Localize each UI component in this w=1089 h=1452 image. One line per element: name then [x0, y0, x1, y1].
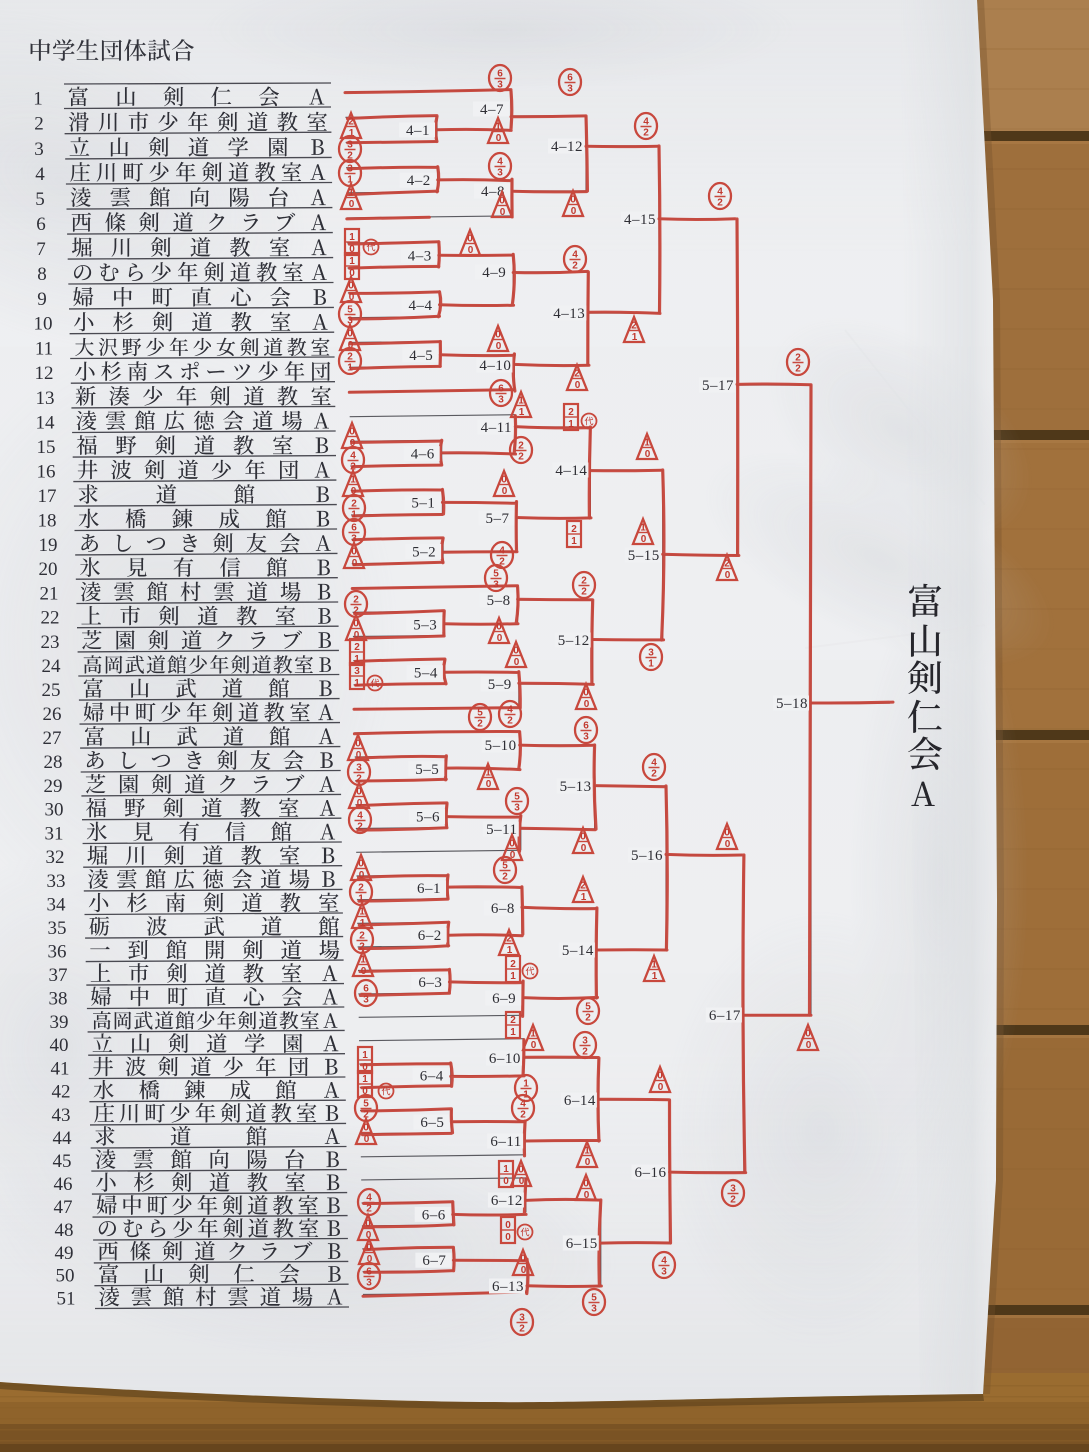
svg-text:0: 0 — [657, 1071, 663, 1082]
svg-text:0: 0 — [806, 1040, 812, 1051]
svg-text:4: 4 — [572, 250, 578, 261]
svg-text:0: 0 — [725, 839, 731, 850]
svg-text:38: 38 — [49, 989, 68, 1010]
svg-text:1: 1 — [362, 1074, 368, 1085]
svg-text:6: 6 — [497, 69, 503, 80]
svg-text:31: 31 — [45, 824, 64, 845]
svg-text:2: 2 — [724, 559, 730, 570]
svg-text:0: 0 — [496, 622, 502, 633]
svg-text:0: 0 — [366, 1243, 372, 1254]
svg-text:6: 6 — [36, 214, 46, 235]
svg-text:6–10: 6–10 — [489, 1051, 521, 1067]
svg-text:4–2: 4–2 — [407, 173, 431, 189]
svg-text:0: 0 — [353, 619, 359, 630]
svg-text:1: 1 — [33, 89, 43, 110]
svg-text:26: 26 — [43, 704, 62, 725]
svg-text:0: 0 — [521, 1265, 527, 1276]
svg-text:1: 1 — [350, 475, 356, 486]
svg-text:6: 6 — [363, 984, 369, 995]
svg-text:1: 1 — [349, 232, 355, 243]
svg-text:2: 2 — [510, 1015, 516, 1026]
svg-text:0: 0 — [502, 486, 508, 497]
svg-text:5–15: 5–15 — [628, 548, 660, 564]
svg-text:1: 1 — [349, 256, 355, 267]
svg-text:3: 3 — [582, 1036, 588, 1047]
svg-text:37: 37 — [49, 965, 68, 986]
svg-text:0: 0 — [495, 330, 501, 341]
svg-text:5–6: 5–6 — [416, 810, 440, 826]
svg-text:2: 2 — [518, 452, 524, 463]
svg-text:0: 0 — [486, 779, 492, 790]
svg-text:0: 0 — [349, 427, 355, 438]
svg-text:0: 0 — [645, 449, 651, 460]
svg-text:3: 3 — [519, 1313, 525, 1324]
svg-text:0: 0 — [348, 281, 354, 292]
svg-text:6–15: 6–15 — [566, 1236, 598, 1252]
svg-text:2: 2 — [353, 595, 359, 606]
svg-text:2: 2 — [574, 369, 580, 380]
svg-text:0: 0 — [580, 832, 586, 843]
svg-text:2: 2 — [358, 883, 364, 894]
svg-text:5–14: 5–14 — [562, 943, 594, 959]
svg-text:6–5: 6–5 — [420, 1115, 444, 1131]
svg-text:4: 4 — [499, 546, 505, 557]
svg-text:28: 28 — [44, 752, 63, 773]
svg-text:6–17: 6–17 — [709, 1008, 741, 1024]
svg-text:1: 1 — [507, 945, 513, 956]
svg-text:6–14: 6–14 — [564, 1093, 596, 1109]
svg-text:5–1: 5–1 — [411, 496, 435, 512]
svg-text:2: 2 — [506, 934, 512, 945]
svg-text:0: 0 — [349, 199, 355, 210]
svg-text:3: 3 — [514, 803, 520, 814]
svg-text:5: 5 — [585, 1002, 591, 1013]
svg-text:44: 44 — [53, 1128, 73, 1149]
svg-text:3: 3 — [583, 732, 589, 743]
svg-text:2: 2 — [568, 407, 574, 418]
svg-text:5–18: 5–18 — [776, 696, 808, 712]
svg-text:1: 1 — [503, 1164, 509, 1175]
svg-text:0: 0 — [641, 534, 647, 545]
svg-text:17: 17 — [38, 486, 57, 507]
svg-text:0: 0 — [497, 633, 503, 644]
svg-text:0: 0 — [513, 646, 519, 657]
svg-text:32: 32 — [46, 847, 65, 868]
svg-text:6–7: 6–7 — [422, 1253, 446, 1269]
svg-text:2: 2 — [366, 1204, 372, 1215]
svg-text:2: 2 — [581, 576, 587, 587]
svg-text:0: 0 — [805, 1029, 811, 1040]
svg-text:2: 2 — [582, 1047, 588, 1058]
svg-text:5–2: 5–2 — [412, 545, 436, 561]
svg-text:45: 45 — [53, 1151, 72, 1172]
svg-text:4: 4 — [366, 1193, 372, 1204]
svg-text:35: 35 — [48, 918, 67, 939]
svg-text:2: 2 — [581, 587, 587, 598]
svg-text:14: 14 — [36, 413, 56, 434]
svg-text:2: 2 — [348, 117, 354, 128]
svg-text:5–10: 5–10 — [485, 738, 517, 754]
svg-text:4–9: 4–9 — [482, 265, 506, 281]
svg-text:1: 1 — [530, 1029, 536, 1040]
svg-text:6–12: 6–12 — [491, 1193, 523, 1209]
svg-text:0: 0 — [509, 839, 515, 850]
svg-text:0: 0 — [358, 859, 364, 870]
svg-text:0: 0 — [500, 207, 506, 218]
svg-text:3: 3 — [354, 666, 360, 677]
svg-text:5–7: 5–7 — [486, 511, 510, 527]
svg-text:42: 42 — [52, 1082, 71, 1103]
svg-text:18: 18 — [38, 511, 57, 532]
svg-text:2: 2 — [354, 642, 360, 653]
svg-text:代: 代 — [366, 243, 375, 253]
svg-text:6–8: 6–8 — [491, 901, 515, 917]
svg-text:代: 代 — [520, 1228, 529, 1238]
svg-text:1: 1 — [581, 892, 587, 903]
svg-text:1: 1 — [651, 960, 657, 971]
svg-text:5–12: 5–12 — [558, 633, 590, 649]
svg-text:4: 4 — [350, 451, 356, 462]
svg-text:0: 0 — [658, 1082, 664, 1093]
svg-text:2: 2 — [519, 1324, 525, 1335]
svg-text:11: 11 — [35, 339, 53, 360]
svg-text:3: 3 — [347, 164, 353, 175]
svg-text:0: 0 — [583, 688, 589, 699]
svg-text:6: 6 — [583, 721, 589, 732]
svg-text:0: 0 — [364, 1134, 370, 1145]
svg-text:2: 2 — [510, 959, 516, 970]
svg-text:6–4: 6–4 — [420, 1069, 444, 1085]
svg-text:2: 2 — [502, 872, 508, 883]
svg-text:1: 1 — [523, 1079, 529, 1090]
svg-text:2: 2 — [795, 364, 801, 375]
svg-text:3: 3 — [497, 168, 503, 179]
svg-text:1: 1 — [510, 1027, 516, 1038]
svg-text:4: 4 — [643, 117, 649, 128]
svg-text:6: 6 — [366, 1267, 372, 1278]
svg-text:33: 33 — [47, 871, 66, 892]
svg-text:6–2: 6–2 — [418, 928, 442, 944]
svg-text:41: 41 — [51, 1059, 70, 1080]
svg-text:5–13: 5–13 — [560, 779, 592, 795]
svg-text:0: 0 — [496, 133, 502, 144]
svg-text:2: 2 — [651, 769, 657, 780]
svg-text:46: 46 — [54, 1174, 73, 1195]
svg-text:29: 29 — [44, 776, 63, 797]
svg-text:1: 1 — [519, 407, 525, 418]
svg-text:1: 1 — [347, 363, 353, 374]
svg-text:1: 1 — [632, 332, 638, 343]
svg-text:2: 2 — [631, 321, 637, 332]
svg-text:6–16: 6–16 — [635, 1165, 667, 1181]
svg-text:4–12: 4–12 — [551, 139, 583, 155]
svg-text:0: 0 — [581, 843, 587, 854]
svg-text:5–5: 5–5 — [415, 762, 439, 778]
svg-text:2: 2 — [717, 198, 723, 209]
svg-text:0: 0 — [363, 1123, 369, 1134]
svg-text:5: 5 — [347, 305, 353, 316]
svg-text:2: 2 — [520, 1110, 526, 1121]
svg-text:0: 0 — [584, 1190, 590, 1201]
svg-text:5: 5 — [493, 569, 499, 580]
svg-text:5–9: 5–9 — [488, 677, 512, 693]
svg-text:3: 3 — [661, 1267, 667, 1278]
svg-text:4–15: 4–15 — [624, 212, 656, 228]
svg-text:4: 4 — [497, 157, 503, 168]
svg-text:0: 0 — [355, 739, 361, 750]
svg-text:4–1: 4–1 — [406, 123, 430, 139]
svg-text:1: 1 — [359, 907, 365, 918]
svg-text:0: 0 — [365, 1219, 371, 1230]
svg-text:1: 1 — [348, 188, 354, 199]
svg-text:6: 6 — [351, 523, 357, 534]
svg-text:12: 12 — [35, 363, 54, 384]
svg-text:3: 3 — [366, 1278, 372, 1289]
svg-text:23: 23 — [41, 632, 60, 653]
svg-text:2: 2 — [518, 441, 524, 452]
svg-text:2: 2 — [507, 716, 513, 727]
svg-text:50: 50 — [56, 1266, 75, 1287]
svg-text:0: 0 — [352, 558, 358, 569]
svg-text:4–4: 4–4 — [409, 298, 433, 314]
svg-text:1: 1 — [485, 768, 491, 779]
svg-text:0: 0 — [496, 341, 502, 352]
svg-text:7: 7 — [36, 239, 46, 260]
svg-text:10: 10 — [34, 314, 53, 335]
svg-text:9: 9 — [37, 289, 47, 310]
svg-text:1: 1 — [652, 971, 658, 982]
svg-text:6–13: 6–13 — [492, 1279, 524, 1295]
svg-text:3: 3 — [497, 80, 503, 91]
svg-text:6–3: 6–3 — [418, 975, 442, 991]
svg-text:4: 4 — [520, 1099, 526, 1110]
svg-text:48: 48 — [55, 1220, 74, 1241]
svg-text:6–1: 6–1 — [417, 881, 441, 897]
svg-text:5–17: 5–17 — [702, 378, 734, 394]
svg-text:1: 1 — [518, 396, 524, 407]
svg-text:6: 6 — [498, 384, 504, 395]
svg-text:16: 16 — [37, 462, 56, 483]
svg-text:5: 5 — [35, 189, 45, 210]
svg-text:4: 4 — [507, 705, 513, 716]
svg-text:1: 1 — [360, 955, 366, 966]
svg-text:2: 2 — [572, 261, 578, 272]
svg-text:4–13: 4–13 — [553, 306, 585, 322]
svg-text:5: 5 — [514, 792, 520, 803]
svg-text:40: 40 — [50, 1035, 69, 1056]
svg-text:3: 3 — [498, 395, 504, 406]
svg-text:0: 0 — [583, 1179, 589, 1190]
svg-text:6–11: 6–11 — [490, 1134, 521, 1150]
svg-text:51: 51 — [57, 1289, 76, 1310]
svg-text:0: 0 — [724, 828, 730, 839]
svg-text:1: 1 — [362, 1050, 368, 1061]
svg-text:39: 39 — [50, 1012, 69, 1033]
svg-text:2: 2 — [795, 353, 801, 364]
svg-text:43: 43 — [52, 1105, 71, 1126]
svg-text:1: 1 — [510, 971, 516, 982]
svg-text:2: 2 — [357, 822, 363, 833]
svg-text:4: 4 — [651, 758, 657, 769]
svg-text:0: 0 — [351, 547, 357, 558]
svg-text:3: 3 — [34, 139, 44, 160]
svg-text:0: 0 — [468, 245, 474, 256]
svg-text:1: 1 — [584, 1146, 590, 1157]
svg-text:4: 4 — [717, 187, 723, 198]
svg-text:6–6: 6–6 — [422, 1207, 446, 1223]
svg-text:0: 0 — [584, 699, 590, 710]
svg-text:8: 8 — [37, 264, 47, 285]
svg-text:4–11: 4–11 — [481, 420, 512, 436]
svg-text:0: 0 — [571, 206, 577, 217]
svg-text:1: 1 — [644, 438, 650, 449]
svg-text:49: 49 — [55, 1243, 74, 1264]
svg-text:5: 5 — [477, 708, 483, 719]
svg-text:3: 3 — [363, 995, 369, 1006]
svg-text:6: 6 — [567, 73, 573, 84]
svg-text:0: 0 — [356, 787, 362, 798]
svg-text:6–9: 6–9 — [492, 991, 516, 1007]
svg-text:3: 3 — [567, 84, 573, 95]
svg-text:0: 0 — [499, 196, 505, 207]
svg-text:22: 22 — [41, 608, 60, 629]
svg-text:47: 47 — [54, 1197, 73, 1218]
svg-text:21: 21 — [40, 584, 59, 605]
svg-text:3: 3 — [493, 580, 499, 591]
svg-text:1: 1 — [354, 678, 360, 689]
svg-text:5–16: 5–16 — [631, 848, 663, 864]
svg-text:4–10: 4–10 — [479, 358, 511, 374]
svg-text:0: 0 — [519, 1176, 525, 1187]
svg-text:0: 0 — [725, 570, 731, 581]
svg-text:5–8: 5–8 — [487, 593, 511, 609]
svg-text:3: 3 — [648, 648, 654, 659]
svg-text:0: 0 — [503, 1176, 509, 1187]
svg-text:34: 34 — [47, 895, 67, 916]
svg-text:代: 代 — [381, 1087, 390, 1097]
svg-text:3: 3 — [730, 1184, 736, 1195]
svg-text:5–4: 5–4 — [414, 666, 438, 682]
svg-text:5: 5 — [502, 861, 508, 872]
svg-text:代: 代 — [370, 679, 379, 689]
svg-text:4: 4 — [35, 164, 45, 185]
svg-text:2: 2 — [347, 352, 353, 363]
svg-text:4–14: 4–14 — [555, 463, 587, 479]
svg-text:2: 2 — [359, 931, 365, 942]
svg-text:36: 36 — [48, 942, 67, 963]
svg-text:4–5: 4–5 — [409, 348, 433, 364]
svg-text:2: 2 — [580, 881, 586, 892]
svg-text:3: 3 — [591, 1304, 597, 1315]
svg-text:2: 2 — [643, 128, 649, 139]
svg-text:代: 代 — [584, 417, 593, 427]
svg-text:25: 25 — [42, 680, 61, 701]
svg-text:0: 0 — [520, 1254, 526, 1265]
svg-text:2: 2 — [585, 1013, 591, 1024]
svg-text:24: 24 — [42, 656, 62, 677]
svg-text:3: 3 — [356, 763, 362, 774]
svg-text:13: 13 — [36, 388, 55, 409]
svg-text:30: 30 — [45, 800, 64, 821]
svg-text:19: 19 — [39, 535, 58, 556]
svg-text:2: 2 — [571, 524, 577, 535]
svg-text:代: 代 — [525, 967, 534, 977]
svg-text:5–3: 5–3 — [413, 617, 437, 633]
svg-text:1: 1 — [495, 122, 501, 133]
svg-text:4: 4 — [357, 811, 363, 822]
svg-text:1: 1 — [571, 536, 577, 547]
svg-text:5: 5 — [591, 1293, 597, 1304]
svg-text:2: 2 — [477, 719, 483, 730]
svg-text:1: 1 — [640, 523, 646, 534]
svg-text:5: 5 — [363, 1099, 369, 1110]
svg-text:27: 27 — [43, 728, 62, 749]
svg-text:1: 1 — [568, 419, 574, 430]
svg-text:0: 0 — [585, 1157, 591, 1168]
svg-text:0: 0 — [531, 1040, 537, 1051]
svg-text:0: 0 — [518, 1165, 524, 1176]
svg-text:2: 2 — [351, 499, 357, 510]
svg-text:0: 0 — [505, 1220, 511, 1231]
svg-text:2: 2 — [34, 114, 44, 135]
svg-text:4–3: 4–3 — [408, 248, 432, 264]
svg-text:0: 0 — [505, 1232, 511, 1243]
svg-text:0: 0 — [347, 329, 353, 340]
svg-text:4–6: 4–6 — [411, 447, 435, 463]
svg-text:3: 3 — [347, 140, 353, 151]
svg-text:1: 1 — [648, 659, 654, 670]
svg-text:4–7: 4–7 — [480, 102, 504, 118]
svg-text:0: 0 — [501, 475, 507, 486]
svg-text:0: 0 — [575, 380, 581, 391]
svg-text:0: 0 — [467, 234, 473, 245]
svg-text:0: 0 — [361, 966, 367, 977]
svg-text:0: 0 — [570, 195, 576, 206]
svg-text:2: 2 — [730, 1195, 736, 1206]
svg-text:0: 0 — [514, 657, 520, 668]
svg-text:20: 20 — [39, 559, 58, 580]
svg-text:4: 4 — [661, 1256, 667, 1267]
svg-text:15: 15 — [37, 437, 56, 458]
